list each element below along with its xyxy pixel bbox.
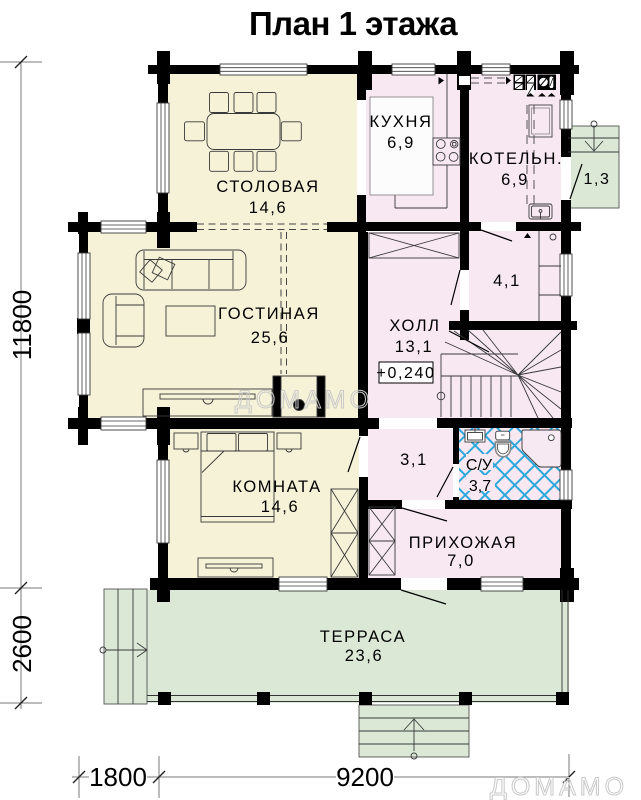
svg-text:14,6: 14,6 [261,498,300,516]
svg-text:6,9: 6,9 [501,171,529,189]
svg-text:ТЕРРАСА: ТЕРРАСА [320,628,406,646]
svg-text:КОТЕЛЬН.: КОТЕЛЬН. [469,150,563,168]
svg-text:7,0: 7,0 [447,552,475,570]
svg-text:КУХНЯ: КУХНЯ [369,113,432,131]
svg-text:9200: 9200 [336,762,394,792]
svg-text:ДОМАМО: ДОМАМО [490,773,628,800]
svg-text:25,6: 25,6 [251,329,290,347]
svg-text:План 1 этажа: План 1 этажа [249,5,458,42]
svg-text:1800: 1800 [89,762,147,792]
svg-text:ХОЛЛ: ХОЛЛ [389,317,440,335]
svg-text:СТОЛОВАЯ: СТОЛОВАЯ [216,178,319,196]
svg-text:С/У: С/У [466,457,493,474]
svg-text:1,3: 1,3 [583,171,610,188]
svg-text:23,6: 23,6 [345,647,384,665]
svg-text:ДОМАМО: ДОМАМО [235,386,373,414]
svg-text:6,9: 6,9 [387,134,415,152]
svg-text:ГОСТИНАЯ: ГОСТИНАЯ [218,305,320,323]
svg-text:4,1: 4,1 [493,272,521,290]
svg-text:3,7: 3,7 [469,478,491,495]
svg-text:3,1: 3,1 [400,451,428,469]
svg-text:+0,240: +0,240 [377,365,436,382]
svg-text:2600: 2600 [7,615,37,673]
svg-text:ПРИХОЖАЯ: ПРИХОЖАЯ [409,534,518,552]
svg-text:КОМНАТА: КОМНАТА [232,478,321,496]
svg-text:14,6: 14,6 [249,199,288,217]
svg-text:13,1: 13,1 [395,338,434,356]
svg-text:11800: 11800 [7,290,37,360]
